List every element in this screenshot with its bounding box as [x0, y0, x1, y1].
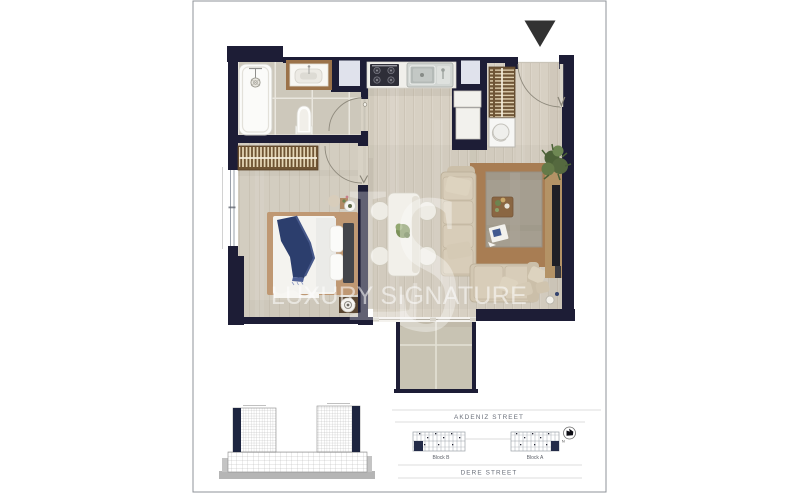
svg-text:DERE STREET: DERE STREET — [461, 470, 518, 477]
svg-text:S: S — [391, 152, 464, 374]
svg-text:LUXURY SIGNATURE: LUXURY SIGNATURE — [271, 282, 527, 310]
svg-text:Block A: Block A — [527, 455, 544, 461]
svg-text:AKDENIZ STREET: AKDENIZ STREET — [454, 414, 524, 421]
svg-text:Block B: Block B — [433, 455, 451, 461]
svg-text:N: N — [562, 440, 565, 444]
